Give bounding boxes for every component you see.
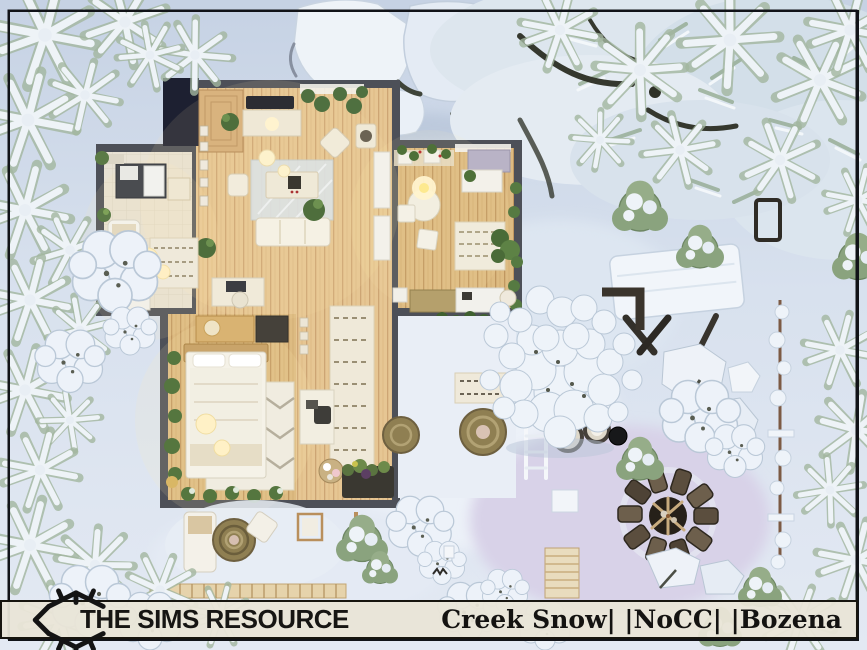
credit-banner: THE SIMS RESOURCE Creek Snow| |NoCC| |Bo… (0, 600, 858, 639)
half-rug (383, 417, 419, 453)
build-title-text: Creek Snow| |NoCC| |Bozena (441, 605, 842, 634)
lot-scene (0, 0, 867, 650)
screenshot-root: THE SIMS RESOURCE Creek Snow| |NoCC| |Bo… (0, 0, 867, 650)
wood-bench (545, 548, 579, 598)
desk-nook (212, 278, 264, 308)
tsr-logo-icon (28, 585, 124, 650)
